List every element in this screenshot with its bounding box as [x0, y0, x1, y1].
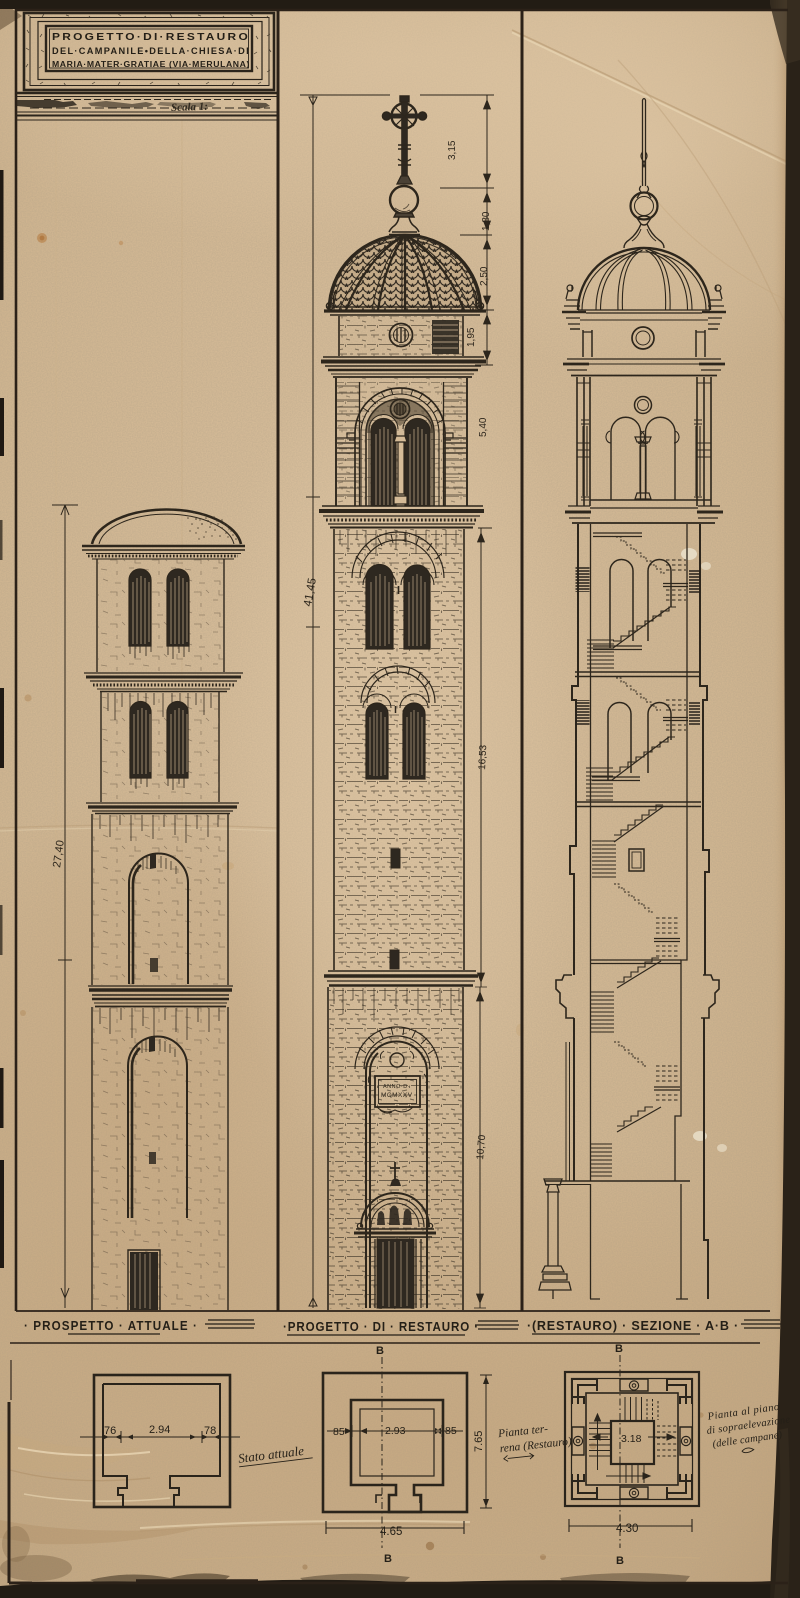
svg-text:2.93: 2.93 — [385, 1425, 406, 1437]
svg-text:ANNO·D·: ANNO·D· — [383, 1084, 410, 1090]
svg-text:PROGETTO·DI·RESTAURO: PROGETTO·DI·RESTAURO — [52, 31, 250, 43]
svg-text:3.18: 3.18 — [621, 1433, 642, 1445]
svg-text:76: 76 — [104, 1425, 116, 1437]
svg-text:DEL·CAMPANILE•DELLA·CHIESA·DI: DEL·CAMPANILE•DELLA·CHIESA·DI — [52, 46, 250, 56]
svg-text:B: B — [616, 1555, 624, 1567]
svg-text:4.30: 4.30 — [616, 1523, 638, 1535]
svg-text:3,15: 3,15 — [447, 140, 458, 160]
svg-text:Scala 1:: Scala 1: — [171, 101, 208, 114]
svg-text:78: 78 — [204, 1425, 216, 1437]
svg-text:·PROGETTO · DI · RESTAURO ·: ·PROGETTO · DI · RESTAURO · — [283, 1319, 479, 1334]
svg-text:B: B — [384, 1553, 392, 1565]
svg-text:B: B — [376, 1345, 384, 1357]
svg-text:16,53: 16,53 — [477, 744, 489, 770]
svg-text:B: B — [615, 1343, 623, 1355]
svg-text:MARIA·MATER·GRATIAE (VIA·MERUL: MARIA·MATER·GRATIAE (VIA·MERULANA) — [52, 59, 250, 69]
svg-text:· PROSPETTO · ATTUALE ·: · PROSPETTO · ATTUALE · — [24, 1318, 198, 1333]
svg-text:85: 85 — [333, 1426, 345, 1438]
svg-text:1,80: 1,80 — [481, 211, 492, 231]
svg-text:85: 85 — [445, 1425, 457, 1437]
svg-text:2,50: 2,50 — [479, 266, 490, 286]
svg-text:2.94: 2.94 — [149, 1424, 170, 1436]
svg-text:10,70: 10,70 — [475, 1134, 488, 1160]
svg-text:1,95: 1,95 — [466, 327, 477, 347]
svg-text:4.65: 4.65 — [380, 1526, 402, 1538]
svg-text:5,40: 5,40 — [478, 417, 489, 437]
svg-text:·(RESTAURO) · SEZIONE · A·B ·: ·(RESTAURO) · SEZIONE · A·B · — [527, 1318, 739, 1333]
svg-text:7.65: 7.65 — [473, 1431, 485, 1452]
svg-text:MCMXXV: MCMXXV — [381, 1092, 413, 1099]
